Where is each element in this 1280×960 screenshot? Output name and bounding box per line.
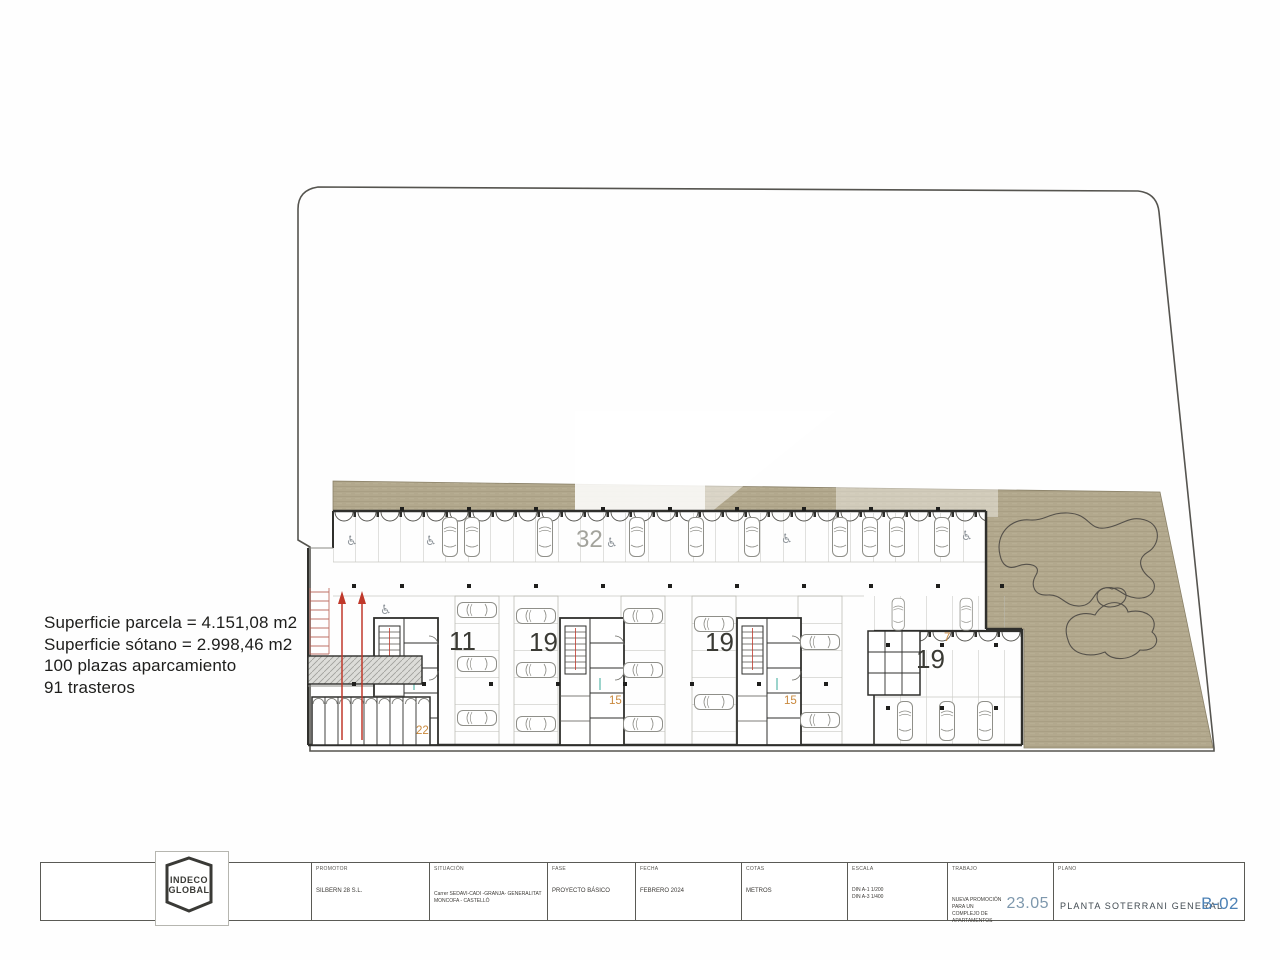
accessible-icon: ♿ xyxy=(606,535,618,550)
logo-line-1: INDECO xyxy=(170,875,208,885)
field-value: METROS xyxy=(746,887,846,896)
field-value: PROYECTO BÁSICO xyxy=(552,887,634,896)
accessible-icon: ♿ xyxy=(380,602,392,617)
logo-shield-icon: INDECO GLOBAL xyxy=(156,852,222,918)
field-value: SILBERN 28 S.L. xyxy=(316,887,428,896)
field-label: FECHA xyxy=(640,866,658,872)
document-page: 32 11 19 19 19 22 15 15 7 ♿ ♿ ♿ ♿ ♿ ♿ Su… xyxy=(0,0,1280,960)
plan-title: PLANTA SOTERRANI GENERAL xyxy=(1060,901,1223,911)
field-label: ESCALA xyxy=(852,866,874,872)
zone-count-4: 19 xyxy=(916,644,945,674)
field-cotas: COTAS METROS xyxy=(741,863,848,920)
field-fecha: FECHA FEBRERO 2024 xyxy=(635,863,742,920)
field-value: DIN A-1 1/200 DIN A-3 1/400 xyxy=(852,887,946,901)
summary-line: 91 trasteros xyxy=(44,677,297,699)
logo-line-2: GLOBAL xyxy=(169,885,210,895)
storage-rooms xyxy=(312,697,430,745)
summary-line: 100 plazas aparcamiento xyxy=(44,655,297,677)
zone-count-3: 19 xyxy=(705,627,734,657)
trastero-count-right: 7 xyxy=(944,632,950,644)
indeco-global-logo: INDECO GLOBAL xyxy=(155,851,229,926)
surface-summary: Superficie parcela = 4.151,08 m2 Superfi… xyxy=(44,612,297,698)
summary-line: Superficie sótano = 2.998,46 m2 xyxy=(44,634,297,656)
accessible-icon: ♿ xyxy=(961,528,973,543)
field-situacion: SITUACIÓN Carrer SEDAVI-CADI -GRANJA- GE… xyxy=(429,863,548,920)
floor-plan: 32 11 19 19 19 22 15 15 7 ♿ ♿ ♿ ♿ ♿ ♿ xyxy=(0,0,1280,960)
accessible-icon: ♿ xyxy=(346,533,358,548)
sheet-number: B-02 xyxy=(1201,894,1239,914)
field-label: PROMOTOR xyxy=(316,866,348,872)
field-escala: ESCALA DIN A-1 1/200 DIN A-3 1/400 xyxy=(847,863,948,920)
accessible-icon: ♿ xyxy=(781,531,793,546)
field-label: PLANO xyxy=(1058,866,1076,872)
hatched-pit xyxy=(308,656,422,684)
field-label: TRABAJO xyxy=(952,866,977,872)
field-label: SITUACIÓN xyxy=(434,866,464,872)
field-value: NUEVA PROMOCIÓN PARA UN COMPLEJO DE APAR… xyxy=(952,897,1010,925)
field-label: FASE xyxy=(552,866,566,872)
field-value: FEBRERO 2024 xyxy=(640,887,740,896)
svg-text:GLOBAL: GLOBAL xyxy=(169,885,210,895)
accessible-icon: ♿ xyxy=(425,533,437,548)
field-fase: FASE PROYECTO BÁSICO xyxy=(547,863,636,920)
field-label: COTAS xyxy=(746,866,764,872)
field-plano: PLANO PLANTA SOTERRANI GENERAL B-02 xyxy=(1053,863,1247,920)
core-4 xyxy=(868,631,920,695)
zone-count-1: 11 xyxy=(449,626,476,656)
zone-count-top: 32 xyxy=(576,526,603,553)
summary-line: Superficie parcela = 4.151,08 m2 xyxy=(44,612,297,634)
trastero-count-mid1: 15 xyxy=(609,695,622,707)
zone-count-2: 19 xyxy=(529,627,558,657)
trastero-count-ramp: 22 xyxy=(416,725,429,737)
field-promotor: PROMOTOR SILBERN 28 S.L. xyxy=(311,863,430,920)
field-value: Carrer SEDAVI-CADI -GRANJA- GENERALITAT … xyxy=(434,891,546,905)
project-code: 23.05 xyxy=(1006,895,1049,913)
field-trabajo: TRABAJO NUEVA PROMOCIÓN PARA UN COMPLEJO… xyxy=(947,863,1054,920)
svg-text:INDECO: INDECO xyxy=(170,875,208,885)
trastero-count-mid2: 15 xyxy=(784,695,797,707)
